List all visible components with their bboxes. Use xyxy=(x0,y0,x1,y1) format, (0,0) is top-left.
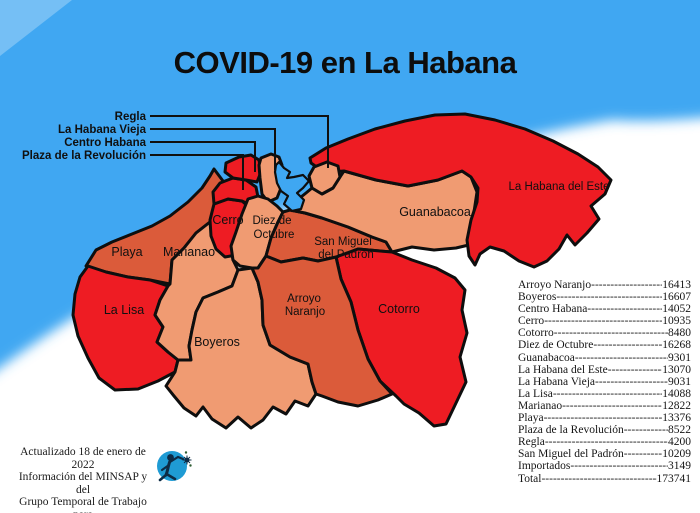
stat-dash-leader: ----------------------------------------… xyxy=(608,364,663,376)
stat-dash-leader: ----------------------------------------… xyxy=(575,352,668,364)
stat-case-count: 13376 xyxy=(662,412,691,424)
stat-case-count: 9031 xyxy=(668,376,691,388)
stat-dash-leader: ----------------------------------------… xyxy=(545,436,668,448)
stat-dash-leader: ----------------------------------------… xyxy=(553,388,662,400)
stat-row: Plaza de la Revolución -----------------… xyxy=(518,424,691,436)
stat-case-count: 8522 xyxy=(668,424,691,436)
label-marianao: Marianao xyxy=(163,245,215,259)
stat-municipality-name: La Habana del Este xyxy=(518,364,608,376)
stat-case-count: 14052 xyxy=(662,303,691,315)
stat-row: Boyeros --------------------------------… xyxy=(518,291,691,303)
callout-label-centro-habana: Centro Habana xyxy=(64,137,146,149)
stat-row: Regla ----------------------------------… xyxy=(518,436,691,448)
stat-row: La Lisa --------------------------------… xyxy=(518,388,691,400)
stat-case-count: 13070 xyxy=(662,364,691,376)
stat-municipality-name: Playa xyxy=(518,412,544,424)
label-guanabacoa: Guanabacoa xyxy=(399,205,471,219)
stat-case-count: 173741 xyxy=(657,473,692,485)
label-san-miguel-line2: del Padrón xyxy=(318,249,374,261)
stat-municipality-name: Diez de Octubre xyxy=(518,339,593,351)
stat-case-count: 3149 xyxy=(668,460,691,472)
stat-row: La Habana Vieja ------------------------… xyxy=(518,376,691,388)
label-arroyo-naranjo-line2: Naranjo xyxy=(285,306,325,318)
stat-row: San Miguel del Padrón ------------------… xyxy=(518,448,691,460)
stat-municipality-name: Total xyxy=(518,473,541,485)
stat-case-count: 14088 xyxy=(662,388,691,400)
stat-case-count: 16607 xyxy=(662,291,691,303)
stat-row: Arroyo Naranjo -------------------------… xyxy=(518,279,691,291)
stat-dash-leader: ----------------------------------------… xyxy=(554,327,668,339)
stat-dash-leader: ----------------------------------------… xyxy=(544,315,662,327)
stat-case-count: 12822 xyxy=(662,400,691,412)
label-la-lisa: La Lisa xyxy=(104,303,144,317)
callout-label-regla: Regla xyxy=(115,111,147,123)
stat-case-count: 10209 xyxy=(662,448,691,460)
stat-row: Centro Habana --------------------------… xyxy=(518,303,691,315)
stat-case-count: 8480 xyxy=(668,327,691,339)
stat-row: Playa ----------------------------------… xyxy=(518,412,691,424)
stat-case-count: 4200 xyxy=(668,436,691,448)
stat-case-count: 9301 xyxy=(668,352,691,364)
stat-row: Importados -----------------------------… xyxy=(518,460,691,472)
label-cotorro: Cotorro xyxy=(378,302,420,316)
stat-row: Cerro ----------------------------------… xyxy=(518,315,691,327)
stat-dash-leader: ----------------------------------------… xyxy=(591,279,662,291)
label-la-habana-del-este: La Habana del Este xyxy=(508,181,609,193)
label-arroyo-naranjo-line1: Arroyo xyxy=(287,293,321,305)
infographic-canvas: Regla La Habana Vieja Centro Habana Plaz… xyxy=(0,0,700,513)
case-count-list: Arroyo Naranjo -------------------------… xyxy=(518,279,691,485)
stat-row: La Habana del Este ---------------------… xyxy=(518,364,691,376)
label-san-miguel-line1: San Miguel xyxy=(314,236,372,248)
stat-municipality-name: Centro Habana xyxy=(518,303,587,315)
stat-row: Cotorro --------------------------------… xyxy=(518,327,691,339)
stat-municipality-name: San Miguel del Padrón xyxy=(518,448,624,460)
stat-municipality-name: Guanabacoa xyxy=(518,352,575,364)
stat-municipality-name: La Habana Vieja xyxy=(518,376,595,388)
stat-municipality-name: Marianao xyxy=(518,400,562,412)
stat-dash-leader: ----------------------------------------… xyxy=(544,412,663,424)
stat-municipality-name: Importados xyxy=(518,460,570,472)
stat-municipality-name: Arroyo Naranjo xyxy=(518,279,591,291)
callout-label-plaza: Plaza de la Revolución xyxy=(22,150,146,162)
stat-dash-leader: ----------------------------------------… xyxy=(593,339,662,351)
stat-municipality-name: Boyeros xyxy=(518,291,556,303)
stat-dash-leader: ----------------------------------------… xyxy=(541,473,656,485)
label-diez-de-octubre-line1: Diez de xyxy=(253,215,292,227)
source-note: Actualizado 18 de enero de 2022 Informac… xyxy=(12,446,154,513)
stat-case-count: 10935 xyxy=(662,315,691,327)
stat-dash-leader: ----------------------------------------… xyxy=(562,400,662,412)
stat-municipality-name: Cotorro xyxy=(518,327,554,339)
stat-dash-leader: ----------------------------------------… xyxy=(587,303,662,315)
stat-case-count: 16268 xyxy=(662,339,691,351)
stat-dash-leader: ----------------------------------------… xyxy=(556,291,662,303)
stat-row: Marianao -------------------------------… xyxy=(518,400,691,412)
stat-case-count: 16413 xyxy=(662,279,691,291)
label-playa: Playa xyxy=(111,245,142,259)
stat-dash-leader: ----------------------------------------… xyxy=(624,424,668,436)
stat-row: Total ----------------------------------… xyxy=(518,473,691,485)
stat-dash-leader: ----------------------------------------… xyxy=(624,448,663,460)
stat-municipality-name: Plaza de la Revolución xyxy=(518,424,624,436)
stat-municipality-name: Cerro xyxy=(518,315,544,327)
stat-row: Guanabacoa -----------------------------… xyxy=(518,352,691,364)
stat-dash-leader: ----------------------------------------… xyxy=(570,460,668,472)
stat-municipality-name: Regla xyxy=(518,436,545,448)
stat-row: Diez de Octubre ------------------------… xyxy=(518,339,691,351)
page-title: COVID-19 en La Habana xyxy=(0,45,690,81)
label-diez-de-octubre-line2: Octubre xyxy=(254,229,295,241)
stat-dash-leader: ----------------------------------------… xyxy=(595,376,668,388)
person-kicking-virus-icon xyxy=(157,451,192,481)
stat-municipality-name: La Lisa xyxy=(518,388,553,400)
label-cerro: Cerro xyxy=(212,213,243,227)
label-boyeros: Boyeros xyxy=(194,335,240,349)
callout-label-la-habana-vieja: La Habana Vieja xyxy=(58,124,147,136)
